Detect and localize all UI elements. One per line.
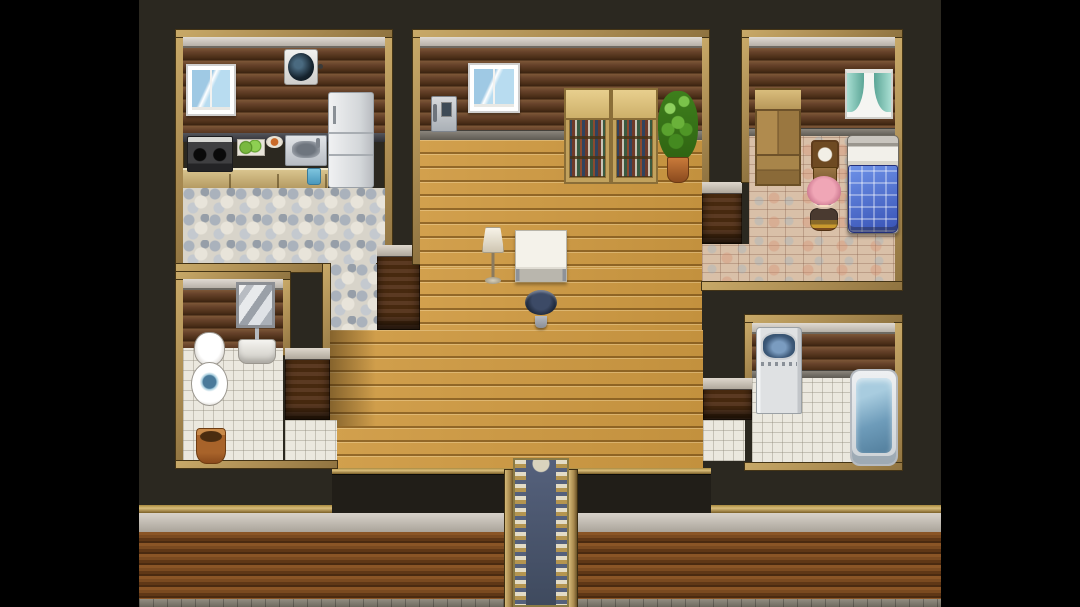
bedroom-curtain-window (845, 69, 893, 119)
bedroom-frame-left (742, 38, 749, 182)
kitchen-floor[interactable] (183, 188, 385, 264)
bathroom-passage-floor[interactable] (285, 420, 337, 461)
potted-plant[interactable] (658, 91, 698, 183)
bathroom-sink[interactable] (238, 328, 276, 370)
mirror[interactable] (236, 282, 275, 328)
bathroom-frame-left (176, 280, 183, 468)
entrance-carpet[interactable] (513, 458, 569, 607)
living-ceiling-trim (420, 37, 702, 48)
living-floor-lower[interactable] (330, 330, 703, 468)
floor-lamp[interactable] (478, 227, 508, 284)
kitchen-frame-left (176, 38, 183, 272)
kitchen-sink[interactable] (285, 135, 327, 166)
entrance-door-post-left (505, 470, 513, 607)
bedroom-doorway-wall-top (702, 182, 742, 244)
refrigerator[interactable] (328, 92, 374, 188)
cutting-board[interactable] (237, 139, 265, 156)
laundry-passage-floor[interactable] (703, 420, 745, 461)
kitchen-frame-bottom-left (176, 264, 330, 272)
game-viewport (0, 0, 1080, 607)
corridor-kitchen-floor[interactable] (330, 264, 377, 330)
living-window (468, 63, 520, 113)
laundry-doorway-wall-top (703, 378, 752, 420)
laundry-frame-top (745, 315, 902, 323)
bookshelf-right[interactable] (611, 88, 658, 184)
bedroom-ceiling-trim (749, 37, 895, 48)
bedroom-passage-floor[interactable] (702, 244, 749, 282)
living-floor-shadow (330, 330, 376, 426)
kitchen-window (186, 64, 236, 116)
bookshelf-left[interactable] (564, 88, 611, 184)
food-plate[interactable] (266, 136, 283, 148)
kitchen-ceiling-trim (183, 37, 385, 48)
bed[interactable] (847, 135, 899, 234)
bathroom-doorway-wall-top (285, 348, 330, 420)
wardrobe[interactable] (755, 88, 801, 186)
bedroom-frame-bottom (702, 282, 902, 290)
table[interactable] (515, 230, 567, 282)
bathroom-frame-right (283, 280, 290, 355)
letterbox-right (941, 0, 1080, 607)
char-hair (807, 176, 840, 205)
living-frame-left (413, 38, 420, 264)
kitchen-frame-right (385, 38, 392, 264)
player-character[interactable] (805, 174, 843, 232)
ventilation-fan (284, 49, 318, 85)
stool[interactable] (525, 290, 557, 328)
cup[interactable] (307, 168, 321, 185)
stove[interactable] (187, 136, 233, 172)
wall-phone[interactable] (431, 96, 457, 132)
basket[interactable] (196, 428, 226, 464)
bathtub[interactable] (850, 369, 898, 466)
char-body (810, 208, 837, 231)
entrance-door-post-right (569, 470, 577, 607)
washing-machine[interactable] (756, 327, 802, 414)
letterbox-left (0, 0, 139, 607)
toilet[interactable] (191, 332, 228, 408)
living-frame-right (702, 38, 709, 182)
